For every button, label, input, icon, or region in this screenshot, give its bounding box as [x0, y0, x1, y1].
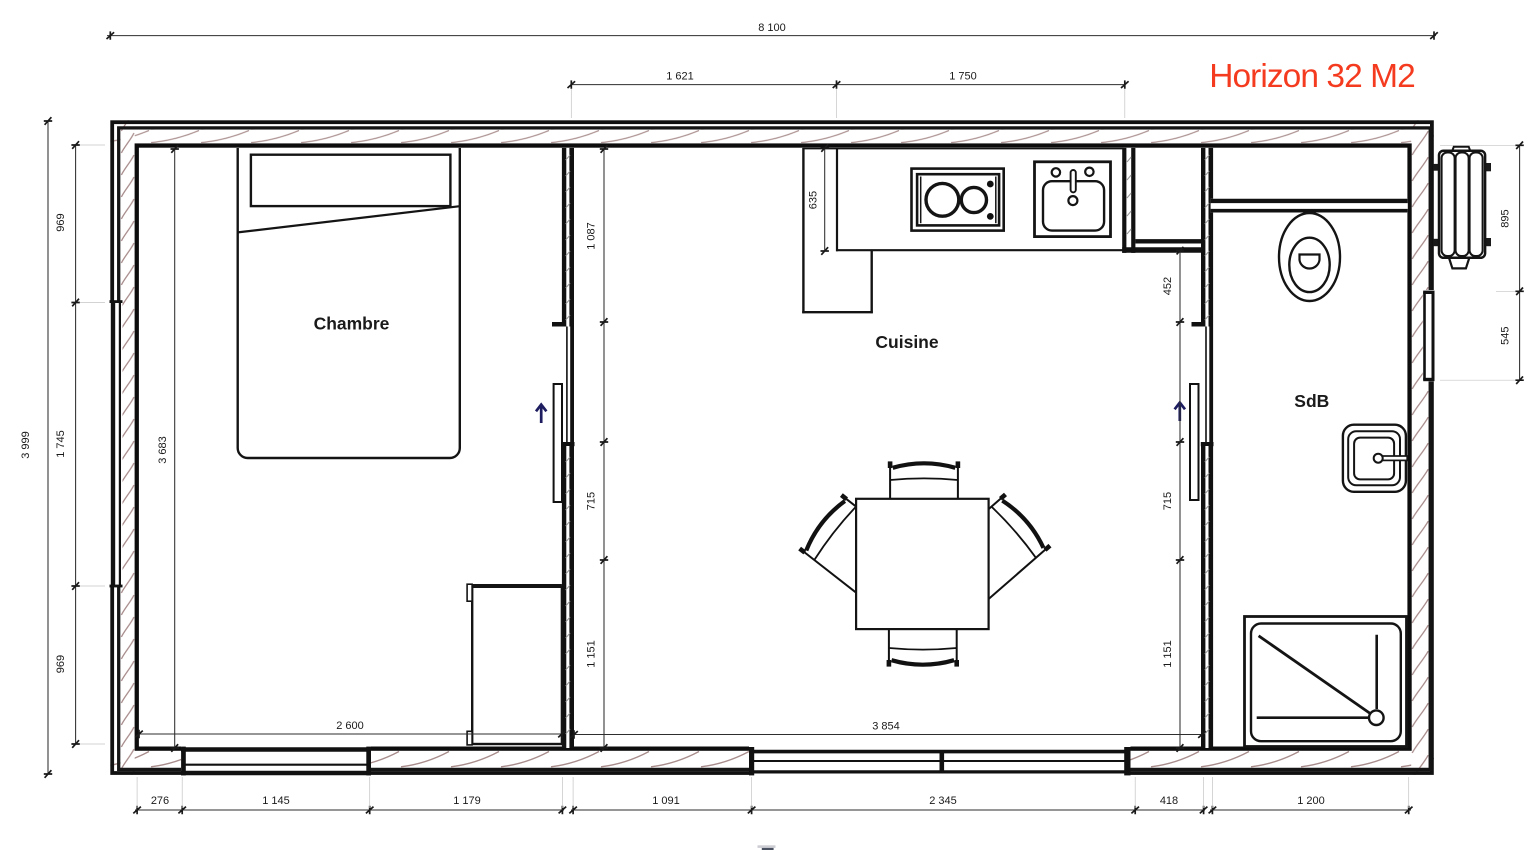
svg-text:1 151: 1 151: [586, 640, 598, 668]
svg-text:1 621: 1 621: [666, 71, 694, 83]
svg-text:635: 635: [808, 191, 820, 209]
svg-text:Horizon 32 M2: Horizon 32 M2: [1209, 58, 1415, 95]
svg-text:715: 715: [586, 492, 598, 510]
svg-text:2 345: 2 345: [929, 795, 957, 807]
svg-text:969: 969: [55, 655, 67, 673]
svg-text:3 999: 3 999: [20, 431, 32, 459]
svg-text:1 145: 1 145: [262, 795, 290, 807]
svg-text:Chambre: Chambre: [314, 314, 390, 334]
svg-text:2 600: 2 600: [336, 720, 364, 732]
svg-text:1 179: 1 179: [453, 795, 481, 807]
svg-text:3 683: 3 683: [157, 436, 169, 464]
svg-text:418: 418: [1160, 795, 1178, 807]
svg-text:715: 715: [1162, 492, 1174, 510]
svg-text:276: 276: [151, 795, 169, 807]
svg-text:3 854: 3 854: [872, 721, 900, 733]
svg-text:1 200: 1 200: [1297, 795, 1325, 807]
svg-text:1 091: 1 091: [652, 795, 680, 807]
svg-text:SdB: SdB: [1294, 391, 1329, 411]
svg-text:Cuisine: Cuisine: [875, 332, 938, 352]
svg-text:545: 545: [1500, 327, 1512, 345]
svg-text:1 745: 1 745: [55, 430, 67, 458]
svg-text:1 151: 1 151: [1162, 640, 1174, 668]
svg-text:1 087: 1 087: [586, 222, 598, 250]
svg-text:8 100: 8 100: [758, 22, 786, 34]
svg-text:452: 452: [1162, 277, 1174, 295]
svg-text:1 750: 1 750: [949, 71, 977, 83]
svg-text:895: 895: [1500, 209, 1512, 227]
svg-text:969: 969: [55, 213, 67, 231]
